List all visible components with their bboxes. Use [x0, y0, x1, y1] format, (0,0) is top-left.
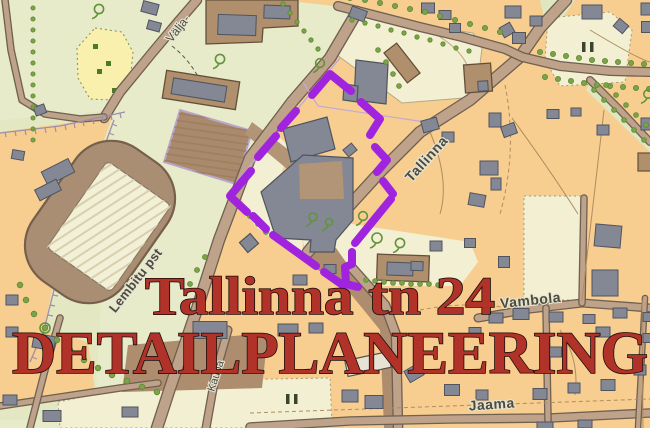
- svg-text:Tallinna tn 24: Tallinna tn 24: [145, 266, 495, 326]
- svg-text:Jaama: Jaama: [468, 394, 515, 413]
- svg-text:DETAILPLANEERING: DETAILPLANEERING: [12, 320, 648, 386]
